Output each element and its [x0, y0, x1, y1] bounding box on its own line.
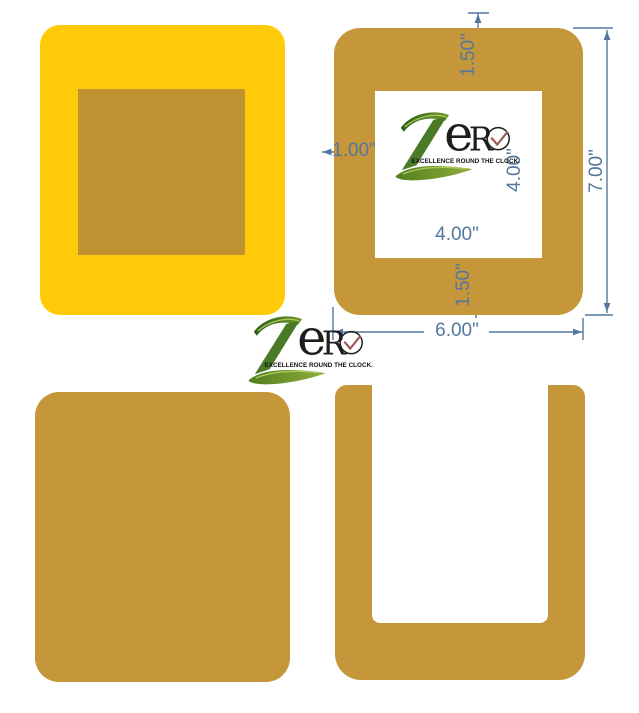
logo-tagline: EXCELLENCE ROUND THE CLOCK.: [265, 362, 374, 369]
dimension-label-inner-width: 4.00": [429, 224, 485, 246]
logo-letter-r: R: [469, 120, 495, 158]
dimension-label-outer-height: 7.00": [586, 143, 608, 199]
logo-letter-r: R: [322, 324, 348, 362]
logo-clock-hands-icon: [491, 132, 507, 145]
dimension-label-left-border: 1.00": [326, 140, 382, 162]
dimension-label-bottom-border: 1.50": [453, 257, 475, 313]
frame-insert-square: [78, 89, 245, 255]
u-shape-cutout: [372, 385, 548, 623]
brand-logo-watermark: e R EXCELLENCE ROUND THE CLOCK.: [243, 312, 363, 389]
brand-logo-in-window: e R EXCELLENCE ROUND THE CLOCK.: [390, 108, 510, 185]
product-dimension-diagram: 1.50" 1.00" 4.00" 4.00" 1.50" 6.00" 7.00…: [0, 0, 639, 713]
solid-back-panel-piece: [35, 392, 290, 682]
logo-clock-hands-icon: [344, 336, 360, 349]
dimension-label-outer-width: 6.00": [429, 320, 485, 342]
logo-tagline: EXCELLENCE ROUND THE CLOCK.: [412, 158, 521, 165]
dimension-label-top-border: 1.50": [458, 27, 480, 83]
u-shaped-spacer-piece: [335, 385, 585, 680]
yellow-frame-piece: [40, 25, 285, 315]
